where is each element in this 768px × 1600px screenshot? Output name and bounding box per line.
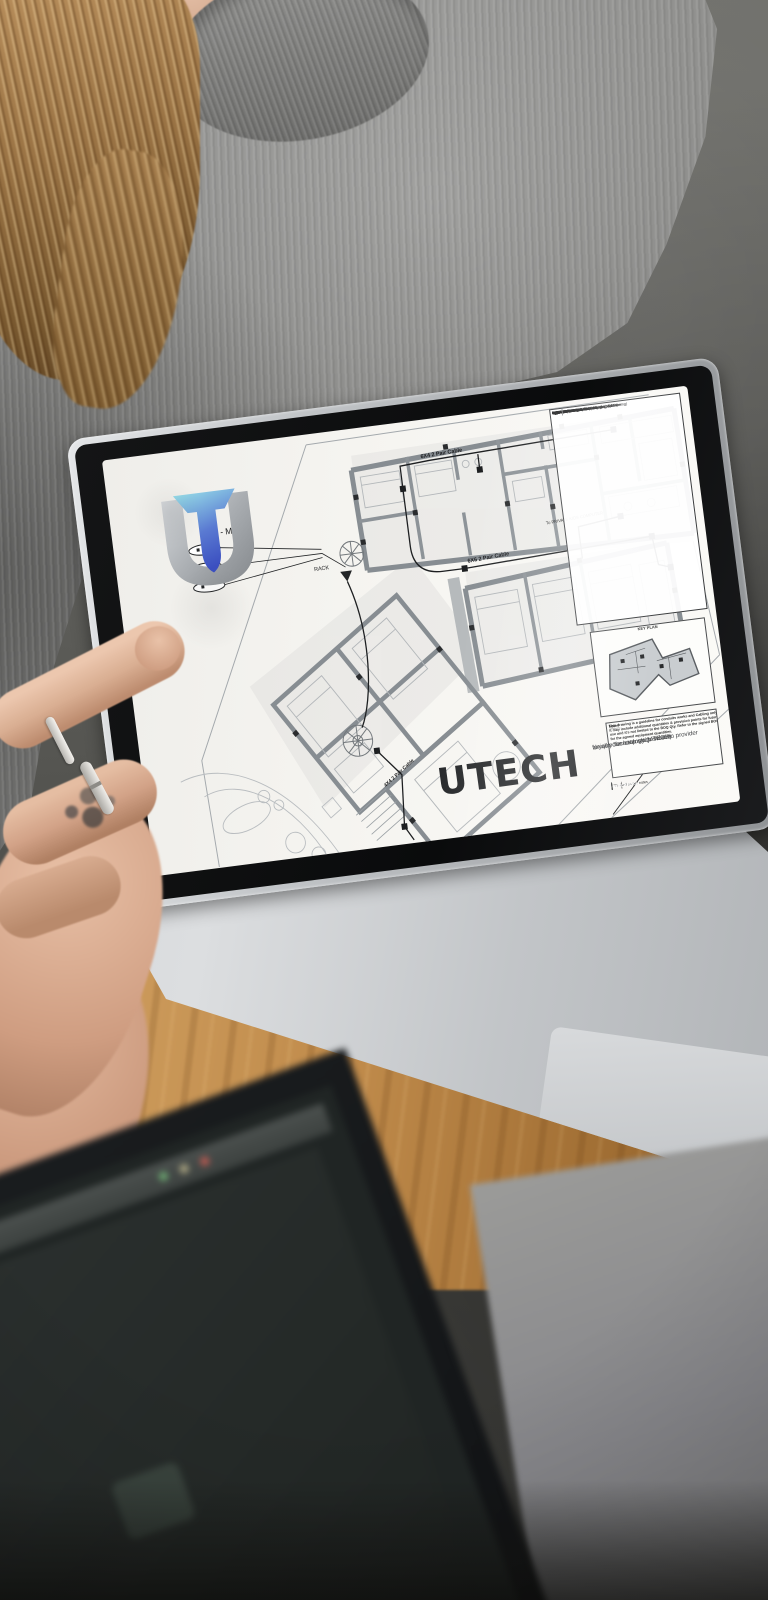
photo-scene: GF - MADB RACK 6X4 2 Pair Cable 6X6 2 Pa… xyxy=(0,0,768,1600)
label-cable-4x4: 4X4 2 Pair Cable xyxy=(383,758,416,789)
key-plan-map xyxy=(594,625,713,714)
bottom-shadow xyxy=(0,1480,768,1600)
key-plan: KEY PLAN xyxy=(590,617,716,717)
legend-table: KEY DESCRIPTION ▤BLACK/NOVA Aria Thermos… xyxy=(549,393,708,626)
legend-row: ▲Rack xyxy=(550,410,551,417)
label-rack: RACK xyxy=(314,565,330,573)
hand-index-finger xyxy=(0,611,195,759)
